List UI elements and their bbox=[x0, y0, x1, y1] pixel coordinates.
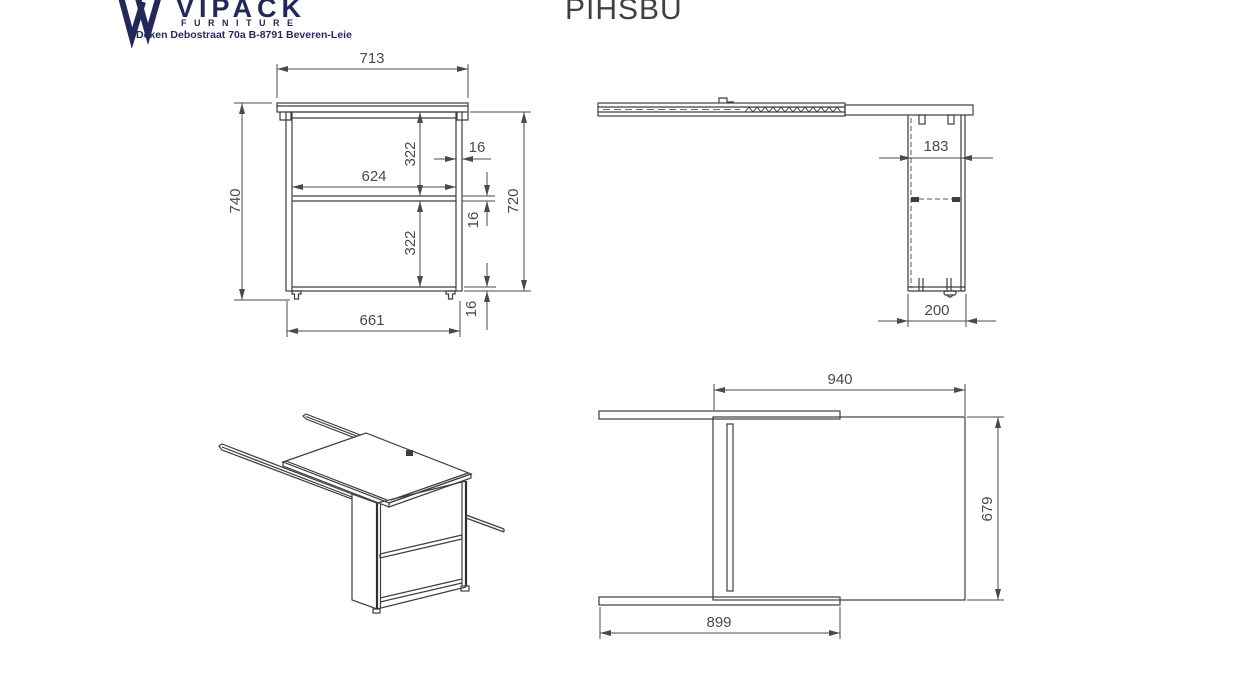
drawing-sheet: 713 740 624 322 16 322 bbox=[0, 0, 1240, 698]
isometric-view bbox=[219, 414, 504, 613]
dim-plan-depth: 679 bbox=[979, 496, 996, 521]
front-cabinet-outline bbox=[277, 103, 468, 299]
iso-desk-top bbox=[283, 433, 471, 503]
dim-side-inner-depth: 183 bbox=[923, 138, 948, 155]
dim-front-bottom-thickness: 16 bbox=[463, 301, 480, 318]
front-view: 713 740 624 322 16 322 bbox=[227, 50, 531, 337]
dim-front-shelf-thickness: 16 bbox=[465, 212, 482, 229]
dim-side-base-depth: 200 bbox=[924, 302, 949, 319]
plan-view: 940 679 899 bbox=[599, 371, 1004, 639]
dim-front-right-height: 720 bbox=[505, 188, 522, 213]
front-dimensions: 713 740 624 322 16 322 bbox=[227, 50, 531, 337]
dim-front-top-width: 713 bbox=[359, 50, 384, 67]
side-dimensions: 183 200 bbox=[878, 138, 996, 327]
iso-left-panel bbox=[352, 494, 377, 609]
dim-front-upper-height: 322 bbox=[402, 141, 419, 166]
dim-plan-top-width: 940 bbox=[827, 371, 852, 388]
dim-front-lower-height: 322 bbox=[402, 230, 419, 255]
iso-rail-bracket bbox=[406, 450, 413, 456]
technical-drawing-page: VIPACK FURNITURE Deken Debostraat 70a B-… bbox=[0, 0, 1240, 698]
dim-front-left-height: 740 bbox=[227, 188, 244, 213]
iso-shelf-unit bbox=[373, 481, 469, 613]
side-view: 183 200 bbox=[598, 98, 996, 327]
dim-front-panel-thickness: 16 bbox=[469, 139, 486, 156]
dim-front-inner-width: 624 bbox=[361, 168, 386, 185]
dim-front-body-width: 661 bbox=[359, 312, 384, 329]
dim-plan-rail-length: 899 bbox=[706, 614, 731, 631]
iso-rail-tip bbox=[466, 515, 504, 532]
plan-outline bbox=[599, 411, 965, 605]
side-profile-outline bbox=[598, 98, 973, 297]
